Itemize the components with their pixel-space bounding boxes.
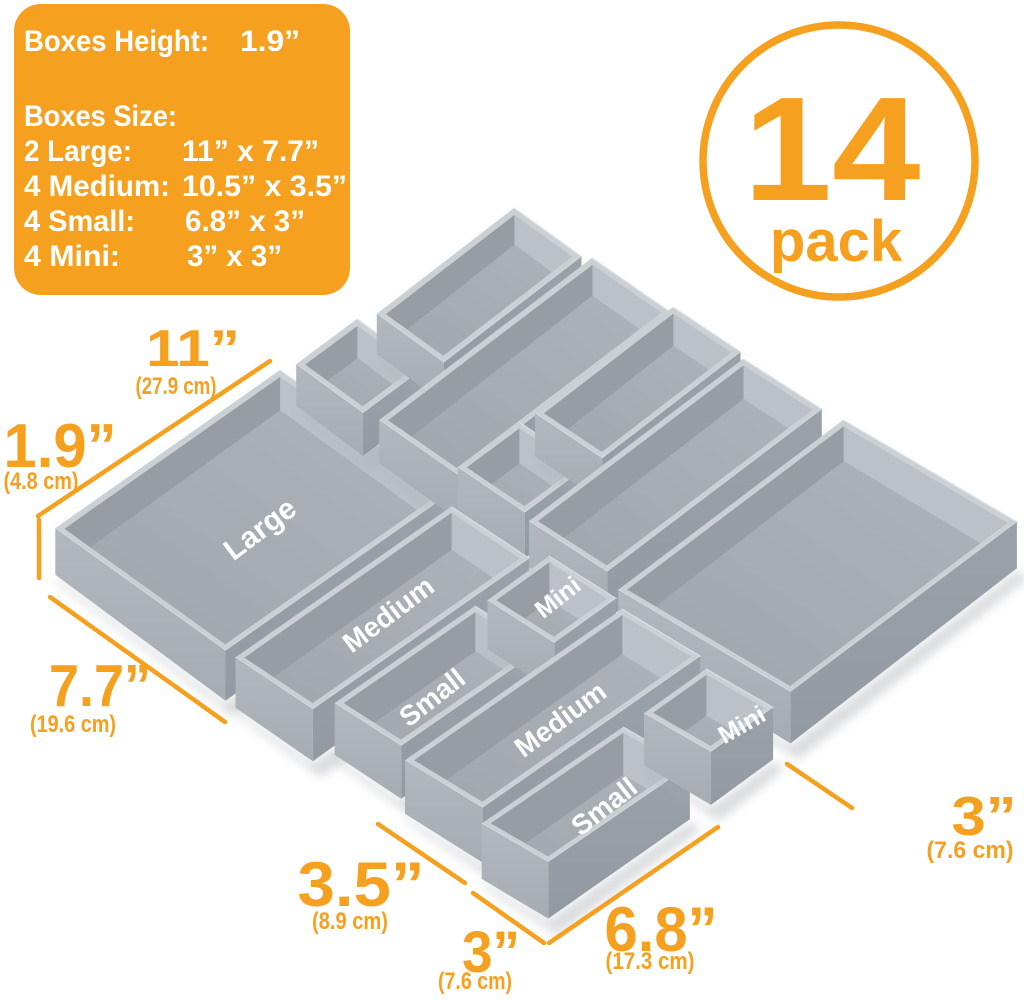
svg-text:2 Large:: 2 Large:: [24, 135, 132, 168]
svg-text:Boxes Height:: Boxes Height:: [24, 25, 209, 58]
svg-text:(27.9 cm): (27.9 cm): [136, 373, 217, 400]
svg-text:3” x 3”: 3” x 3”: [187, 240, 282, 273]
svg-text:pack: pack: [770, 209, 903, 274]
svg-text:4 Small:: 4 Small:: [24, 205, 135, 238]
svg-text:(7.6 cm): (7.6 cm): [438, 968, 512, 995]
svg-text:(4.8 cm): (4.8 cm): [4, 468, 79, 495]
svg-text:(7.6 cm): (7.6 cm): [927, 837, 1014, 864]
svg-text:7.7”: 7.7”: [49, 653, 151, 719]
svg-text:(8.9 cm): (8.9 cm): [312, 908, 388, 935]
svg-text:14: 14: [744, 67, 921, 232]
svg-text:4 Medium:: 4 Medium:: [24, 170, 170, 203]
svg-text:10.5” x 3.5”: 10.5” x 3.5”: [182, 170, 347, 203]
svg-text:(19.6 cm): (19.6 cm): [30, 711, 116, 738]
svg-text:Boxes Size:: Boxes Size:: [24, 100, 177, 133]
svg-text:11”: 11”: [146, 320, 240, 378]
svg-text:(17.3 cm): (17.3 cm): [606, 948, 695, 975]
svg-text:1.9”: 1.9”: [240, 25, 300, 58]
svg-text:11” x 7.7”: 11” x 7.7”: [182, 135, 319, 168]
svg-text:4 Mini:: 4 Mini:: [24, 240, 120, 273]
svg-text:6.8” x 3”: 6.8” x 3”: [185, 205, 305, 238]
